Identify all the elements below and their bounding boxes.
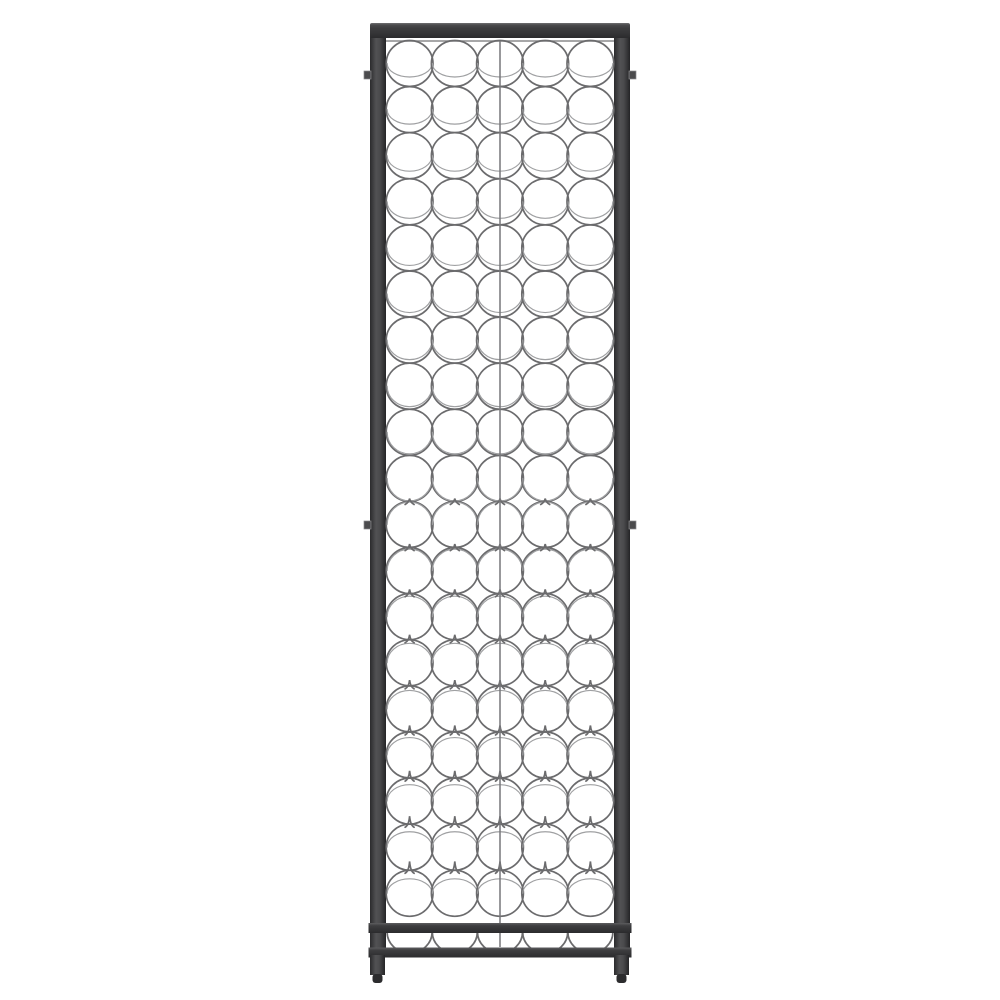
bottle-ring: [522, 635, 569, 686]
bottle-ring: [431, 225, 478, 271]
bottle-ring: [567, 41, 614, 87]
legs: [370, 955, 629, 983]
bottle-ring: [386, 544, 433, 594]
bottle-ring: [522, 499, 569, 548]
bottle-ring: [522, 862, 569, 917]
mount-tab-left: [364, 71, 371, 79]
leg: [370, 955, 385, 975]
foot: [373, 974, 383, 983]
bottle-ring: [431, 41, 478, 87]
bottle-ring: [522, 725, 569, 778]
bottle-ring: [567, 271, 614, 317]
mount-tab-right: [629, 71, 636, 79]
bottle-ring: [386, 409, 433, 455]
mount-tab-left: [364, 521, 371, 529]
bottle-ring: [431, 363, 478, 409]
leg: [614, 955, 629, 975]
bottle-ring: [522, 409, 569, 455]
bottle-ring: [386, 862, 433, 917]
bottle-ring: [431, 862, 478, 917]
bottle-ring: [567, 363, 614, 409]
bottle-ring: [567, 317, 614, 363]
bottle-ring: [567, 179, 614, 225]
bottle-ring: [567, 680, 614, 732]
bottle-ring: [386, 499, 433, 548]
bottle-ring: [522, 179, 569, 225]
bottle-ring: [567, 409, 614, 455]
bottom-rail-upper: [369, 923, 632, 933]
bottle-ring: [431, 680, 478, 732]
bottle-ring: [386, 455, 433, 501]
wine-rack-svg: [0, 0, 1000, 1000]
bottle-ring: [386, 725, 433, 778]
bottle-ring: [522, 589, 569, 639]
bottle-ring: [522, 455, 569, 501]
bottle-ring: [522, 225, 569, 271]
bottle-ring: [567, 133, 614, 179]
bottle-ring: [567, 589, 614, 639]
foot: [617, 974, 627, 983]
bottle-ring: [431, 499, 478, 548]
bottle-ring: [431, 87, 478, 133]
wine-rack-photo: [0, 0, 1000, 1000]
bottle-ring: [431, 725, 478, 778]
bottle-ring: [567, 87, 614, 133]
product-photo-canvas: [0, 0, 1000, 1000]
bottle-ring: [567, 544, 614, 594]
bottle-ring: [431, 409, 478, 455]
bottle-ring: [522, 87, 569, 133]
bottle-ring: [386, 363, 433, 409]
bottle-ring: [567, 455, 614, 501]
bottle-ring: [522, 363, 569, 409]
bottle-ring: [386, 133, 433, 179]
bottle-ring: [522, 317, 569, 363]
bottle-ring: [431, 455, 478, 501]
bottle-ring: [386, 635, 433, 686]
bottle-ring: [522, 544, 569, 594]
bottle-ring: [431, 271, 478, 317]
bottle-ring: [522, 271, 569, 317]
bottle-ring: [386, 87, 433, 133]
bottle-ring: [567, 725, 614, 778]
bottle-ring: [522, 41, 569, 87]
bottle-ring: [431, 544, 478, 594]
bottom-rail-lower: [369, 948, 632, 958]
bottle-ring: [386, 317, 433, 363]
bottle-ring: [567, 225, 614, 271]
top-bar: [370, 23, 630, 38]
bottle-ring: [386, 225, 433, 271]
bottle-ring: [386, 271, 433, 317]
bottle-ring: [567, 499, 614, 548]
bottle-ring: [431, 179, 478, 225]
bottle-ring: [431, 635, 478, 686]
bottle-ring: [567, 635, 614, 686]
bottle-ring: [522, 133, 569, 179]
bottle-ring: [522, 680, 569, 732]
mount-tab-right: [629, 521, 636, 529]
bottle-ring: [386, 41, 433, 87]
bottle-ring: [431, 133, 478, 179]
bottle-ring: [386, 179, 433, 225]
bottle-ring: [386, 589, 433, 639]
bottle-ring: [431, 317, 478, 363]
bottle-ring: [386, 680, 433, 732]
bottle-ring: [567, 862, 614, 917]
bottle-ring: [431, 589, 478, 639]
